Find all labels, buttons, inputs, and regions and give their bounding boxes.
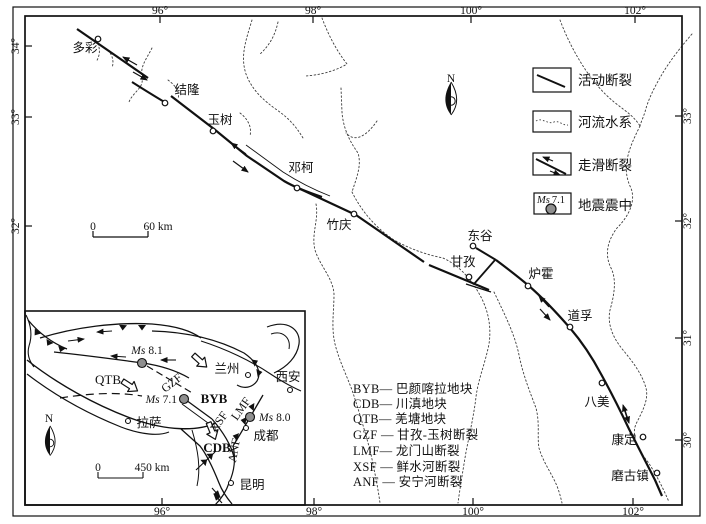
city-dot [294,185,300,191]
abbr-item: BYB— 巴颜喀拉地块 [353,381,473,396]
epicenter-ms81 [138,359,147,368]
abbreviation-list: BYB— 巴颜喀拉地块 CDB— 川滇地块 QTB— 羌塘地块 GZF — 甘孜… [353,381,478,489]
inset-city-label: 昆明 [239,478,264,492]
city-label: 康定 [611,432,636,447]
river-line [244,20,303,138]
abbr-item: ANF — 安宁河断裂 [353,474,463,489]
axis-label-bottom: 96° [154,506,171,518]
inset-city-label: 西安 [275,369,300,384]
city-dot [567,324,573,330]
river-line [346,121,377,138]
city-dot [525,283,531,289]
inset-scale-zero: 0 [95,462,101,474]
city-dot [466,274,472,280]
axis-label-bottom: 102° [622,506,644,518]
city-label: 磨古镇 [611,468,649,483]
river-line [259,22,278,55]
axis-label-bottom: 98° [306,506,323,518]
epicenter-ms71 [180,395,189,404]
legend-box [533,111,571,132]
abbr-item: GZF — 甘孜-玉树断裂 [353,427,478,442]
scale-zero: 0 [90,221,96,233]
donggu-branch-fault [476,248,496,260]
city-dot [470,243,476,249]
axis-label-top: 100° [460,5,482,17]
ms-prefix: Ms [536,195,550,206]
inset-city-label: 兰州 [214,362,239,376]
abbr-item: QTB— 羌塘地块 [353,411,447,426]
city-label: 玉树 [207,112,232,127]
river-line [129,48,152,102]
river-line [306,18,347,76]
axis-label-top: 98° [305,5,322,17]
abbr-item: XSF — 鲜水河断裂 [353,459,461,474]
river-line [341,88,359,192]
city-label: 多彩 [72,41,98,55]
inset-scale-label: 450 km [135,462,170,474]
axis-label-right: 33° [682,108,694,125]
legend-label-river: 河流水系 [578,115,632,130]
city-dot [599,380,605,386]
map-legend: Ms7.1 活动断裂 河流水系 走滑断裂 地震震中 [533,68,632,214]
inset-map: Ms8.1 Ms7.1 Ms8.0 兰州 西安 拉萨 成都 昆明 QTB BYB… [25,311,305,505]
block-label-byb: BYB [201,391,228,406]
axis-label-left: 32° [10,218,22,235]
inset-frame [25,311,305,505]
legend-label-epicenter: 地震震中 [578,198,632,213]
inset-north-label: N [45,413,54,425]
scale-label: 60 km [143,221,172,233]
city-dot [162,100,168,106]
abbr-item: LMF— 龙门山断裂 [353,443,460,458]
active-fault [132,82,166,103]
river-line [494,292,562,503]
city-label: 道孚 [567,309,592,323]
xianshuihe-fault [496,260,662,496]
city-dot [654,470,660,476]
axis-label-top: 96° [152,5,169,17]
scale-bar-main [93,231,148,237]
legend-label-strike-slip: 走滑断裂 [578,158,632,173]
river-line [240,113,251,136]
city-label: 结隆 [174,82,200,97]
axis-label-right: 30° [682,432,694,449]
city-label: 炉霍 [528,267,553,281]
legend-box [533,68,571,92]
city-dot [351,211,357,217]
map-canvas: 多彩 结隆 玉树 邓柯 竹庆 东谷 甘孜 炉霍 道孚 八美 康定 磨古镇 N 0… [0,0,706,524]
block-label-qtb: QTB [95,372,121,387]
map-figure: 多彩 结隆 玉树 邓柯 竹庆 东谷 甘孜 炉霍 道孚 八美 康定 磨古镇 N 0… [0,0,706,524]
axis-label-bottom: 100° [462,506,484,518]
axis-label-top: 102° [624,5,646,17]
north-arrow-main: N [445,73,456,115]
city-label: 竹庆 [326,218,352,232]
city-label: 东谷 [467,229,493,243]
city-dot [210,128,216,134]
abbr-item: CDB— 川滇地块 [353,397,447,411]
river-line [314,204,380,503]
axis-label-left: 33° [10,109,22,126]
inset-city-label: 成都 [253,429,279,443]
axis-label-right: 31° [682,330,694,347]
city-label: 邓柯 [288,161,313,175]
legend-label-active-fault: 活动断裂 [578,73,632,88]
connector-fault [474,260,495,284]
inset-city-label: 拉萨 [136,415,161,430]
city-dot [640,434,646,440]
city-label: 甘孜 [450,255,476,269]
city-label: 八美 [584,395,609,409]
axis-label-left: 34° [10,38,22,55]
axis-label-right: 32° [682,213,694,230]
epicenter-ms80 [246,413,255,422]
